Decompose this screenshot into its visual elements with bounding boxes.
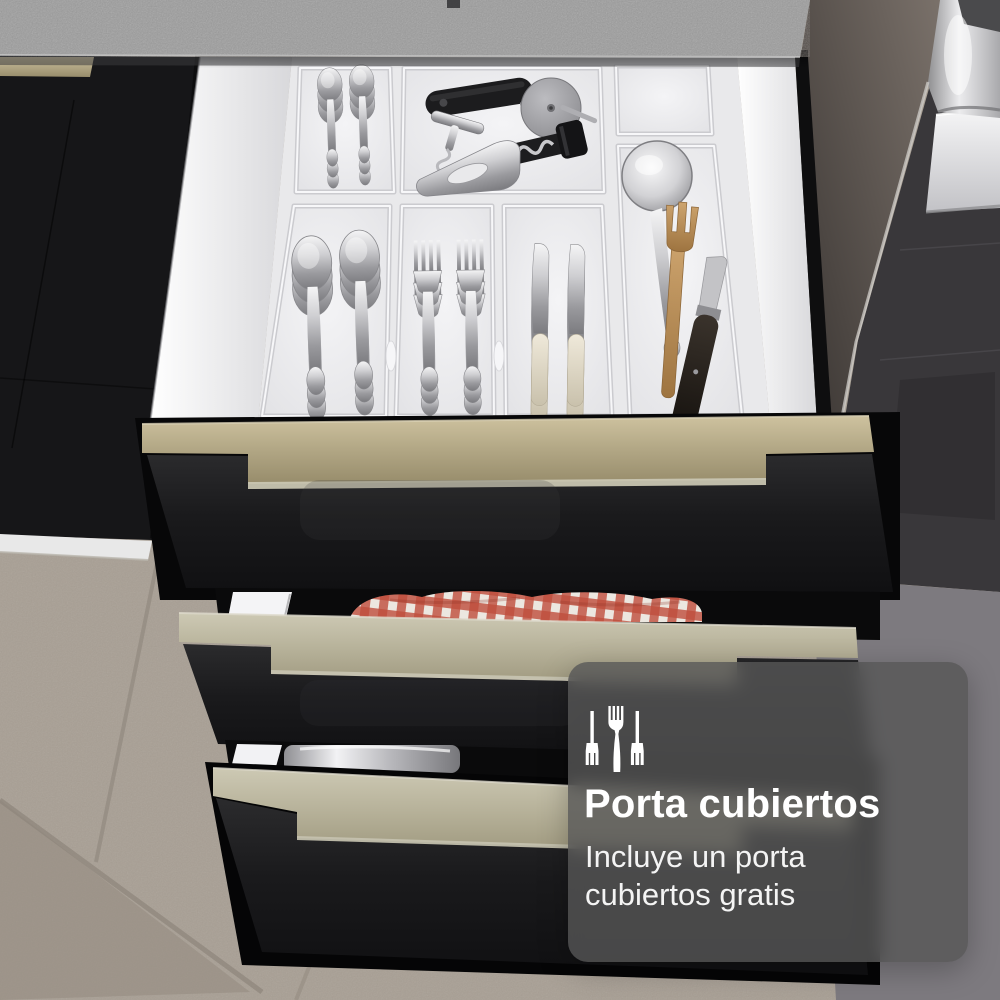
countertop: [0, 0, 810, 67]
drawer-1-handle: [142, 416, 874, 484]
promo-title: Porta cubiertos: [584, 782, 880, 827]
oven-handle-band: [926, 108, 1000, 212]
cutlery-icon: [585, 706, 645, 772]
drawer-1: [135, 412, 900, 600]
kitchen-photo: Porta cubiertos Incluye un portacubierto…: [0, 0, 1000, 1000]
promo-card: Porta cubiertos Incluye un portacubierto…: [568, 662, 968, 962]
promo-subtitle: Incluye un portacubiertos gratis: [585, 838, 806, 914]
